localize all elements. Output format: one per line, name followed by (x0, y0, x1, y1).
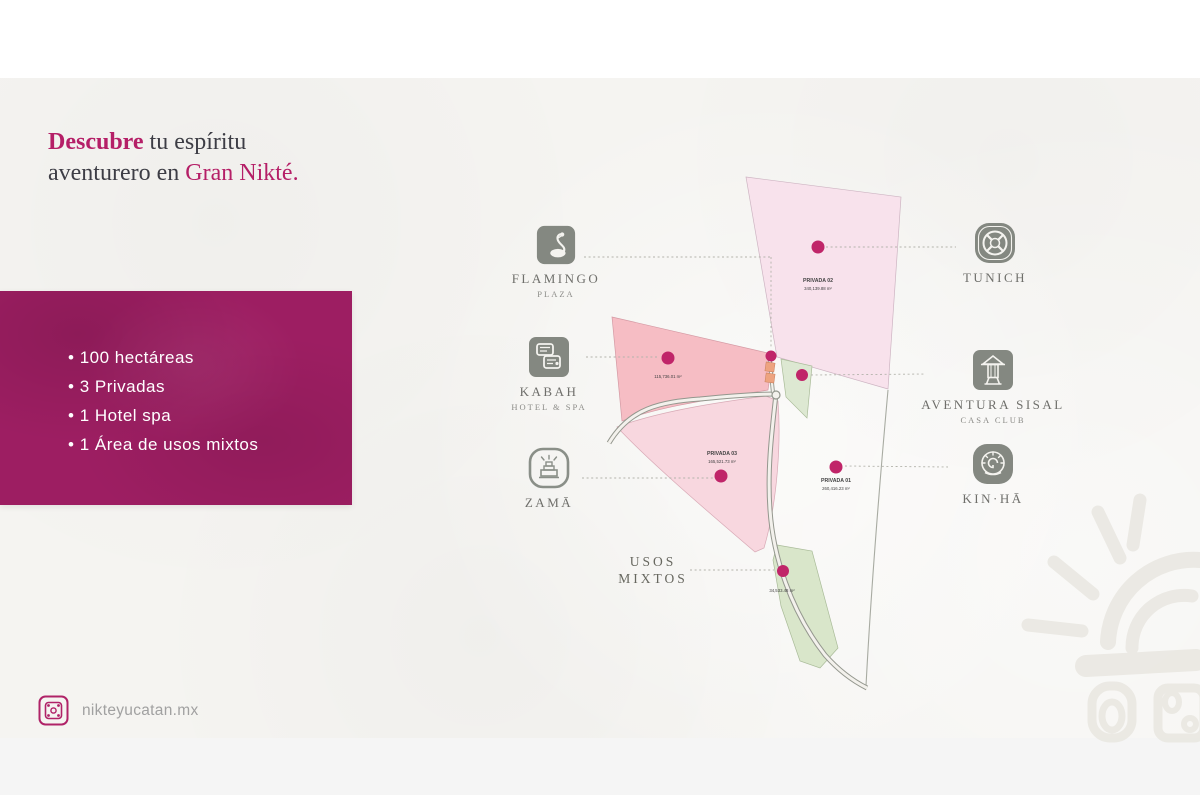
stat-hectareas: 100 hectáreas (68, 349, 352, 366)
dot-privada-03 (715, 470, 728, 483)
kabah-zone-area: 115,736.01 m² (654, 374, 682, 379)
dot-usos-mixtos (777, 565, 789, 577)
usos-mixtos-area: 34,533.48 m² (769, 588, 795, 593)
stat-usos-mixtos: 1 Área de usos mixtos (68, 436, 352, 453)
stats-panel: 100 hectáreas 3 Privadas 1 Hotel spa 1 Á… (0, 291, 352, 505)
stats-list: 100 hectáreas 3 Privadas 1 Hotel spa 1 Á… (0, 291, 352, 453)
stat-privadas: 3 Privadas (68, 378, 352, 395)
stat-hotel-spa: 1 Hotel spa (68, 407, 352, 424)
privada-03-name: PRIVADA 03 (707, 451, 737, 457)
boundary-line-east (866, 390, 888, 686)
tunich-icon (973, 221, 1017, 265)
title-line-1: Descubre tu espíritu (48, 127, 299, 158)
tunich-label: TUNICH (963, 270, 1027, 286)
dot-casa-club (796, 369, 808, 381)
page-title: Descubre tu espíritu aventurero en Gran … (48, 127, 299, 189)
privada-02-area: 340,139.88 m² (804, 286, 832, 291)
parcel-usos-mixtos (773, 545, 838, 668)
road-junction (772, 391, 780, 399)
dot-flamingo-plaza (766, 351, 777, 362)
parcel-casa-club-green (781, 359, 812, 418)
top-white-band (0, 0, 1200, 78)
privada-02-name: PRIVADA 02 (803, 278, 833, 284)
nikte-logo-icon (38, 695, 69, 726)
flamingo-sublabel: PLAZA (537, 289, 574, 299)
dot-privada-01 (830, 461, 843, 474)
kinha-icon (971, 442, 1015, 486)
sun-watermark-icon (1010, 480, 1200, 755)
zama-label: ZAMĀ (525, 495, 573, 511)
zama-icon (527, 446, 571, 490)
privada-01-name: PRIVADA 01 (821, 478, 851, 484)
title-accent-descubre: Descubre (48, 129, 144, 155)
parcel-privada-03 (617, 396, 779, 552)
aventura-sisal-icon (971, 348, 1015, 392)
kabah-label: KABAH (520, 384, 579, 400)
title-line-2: aventurero en Gran Nikté. (48, 158, 299, 189)
kabah-icon (527, 335, 571, 379)
privada-01-area: 260,416.23 m² (822, 486, 850, 491)
slide-canvas: Descubre tu espíritu aventurero en Gran … (0, 0, 1200, 795)
connector-kinha (845, 466, 948, 467)
dot-kabah-zone (662, 352, 675, 365)
dot-privada-02 (812, 241, 825, 254)
flamingo-icon (535, 224, 577, 266)
master-plan-map: PRIVADA 02 340,139.88 m² PRIVADA 03 165,… (575, 160, 960, 700)
privada-03-area: 165,521.73 m² (708, 459, 736, 464)
title-accent-gran-nikte: Gran Nikté. (185, 160, 298, 186)
aventura-sisal-sublabel: CASA CLUB (961, 415, 1026, 425)
website-url: nikteyucatan.mx (82, 702, 199, 720)
